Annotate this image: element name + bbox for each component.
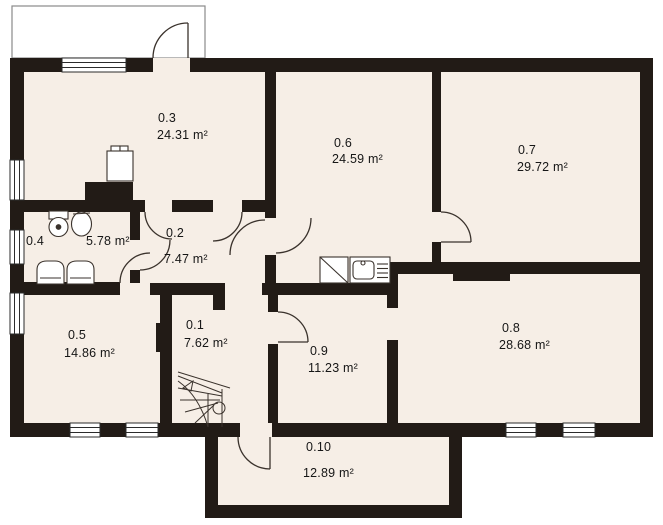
floor-plan: 0.17.62 m²0.27.47 m²0.324.31 m²0.45.78 m…: [0, 0, 663, 525]
window: [10, 230, 24, 264]
window: [70, 423, 100, 437]
window: [126, 423, 158, 437]
toilet-fixture: [49, 211, 68, 237]
porch-outline: [12, 6, 205, 58]
floor-plan-drawing: [0, 0, 663, 525]
kitchen-counter-fixture: [320, 257, 348, 283]
wall-block: [156, 323, 172, 352]
window: [62, 58, 126, 72]
chimney-block: [85, 182, 133, 212]
washbasin-fixture: [37, 261, 64, 284]
stove-fixture: [107, 146, 133, 181]
window: [506, 423, 536, 437]
window: [563, 423, 595, 437]
kitchen-sink-fixture: [350, 257, 390, 283]
window: [10, 160, 24, 200]
wc-fixture: [72, 212, 92, 236]
wall-pier: [453, 262, 510, 281]
washbasin-fixture: [67, 261, 94, 284]
window: [10, 293, 24, 334]
